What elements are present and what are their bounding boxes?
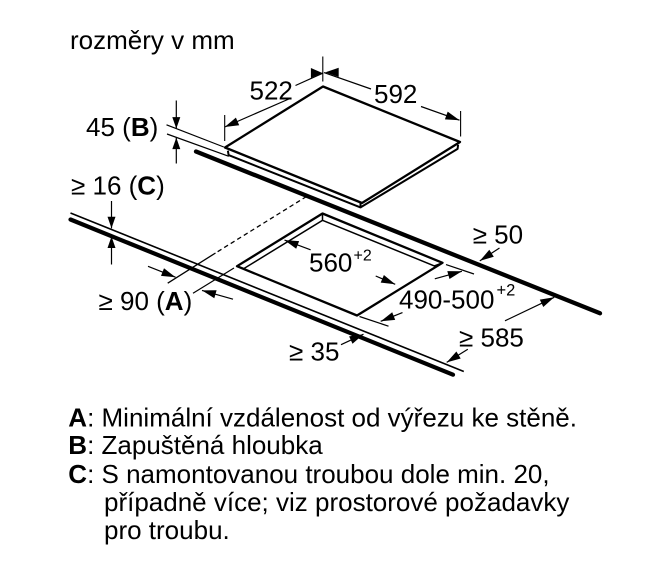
svg-text:490-500: 490-500 — [399, 285, 494, 315]
svg-text:rozměry v mm: rozměry v mm — [70, 25, 235, 55]
svg-text:592: 592 — [374, 79, 417, 109]
svg-text:≥ 16 (C): ≥ 16 (C) — [71, 171, 165, 201]
svg-text:případně více; viz prostorové: případně více; viz prostorové požadavky — [104, 487, 569, 517]
svg-text:≥ 35: ≥ 35 — [289, 337, 339, 367]
svg-text:45 (B): 45 (B) — [86, 112, 158, 142]
svg-text:pro troubu.: pro troubu. — [104, 515, 230, 545]
svg-text:A: Minimální vzdálenost od výř: A: Minimální vzdálenost od výřezu ke stě… — [68, 403, 577, 433]
svg-text:C: S namontovanou troubou dole: C: S namontovanou troubou dole min. 20, — [68, 459, 549, 489]
svg-text:≥ 50: ≥ 50 — [473, 220, 523, 250]
svg-text:522: 522 — [250, 75, 293, 105]
svg-text:+2: +2 — [354, 247, 372, 264]
svg-text:≥ 90 (A): ≥ 90 (A) — [99, 286, 193, 316]
svg-text:B: Zapuštěná hloubka: B: Zapuštěná hloubka — [68, 430, 323, 460]
svg-text:+2: +2 — [497, 281, 516, 299]
svg-text:560: 560 — [309, 247, 352, 277]
svg-text:≥ 585: ≥ 585 — [459, 323, 524, 353]
